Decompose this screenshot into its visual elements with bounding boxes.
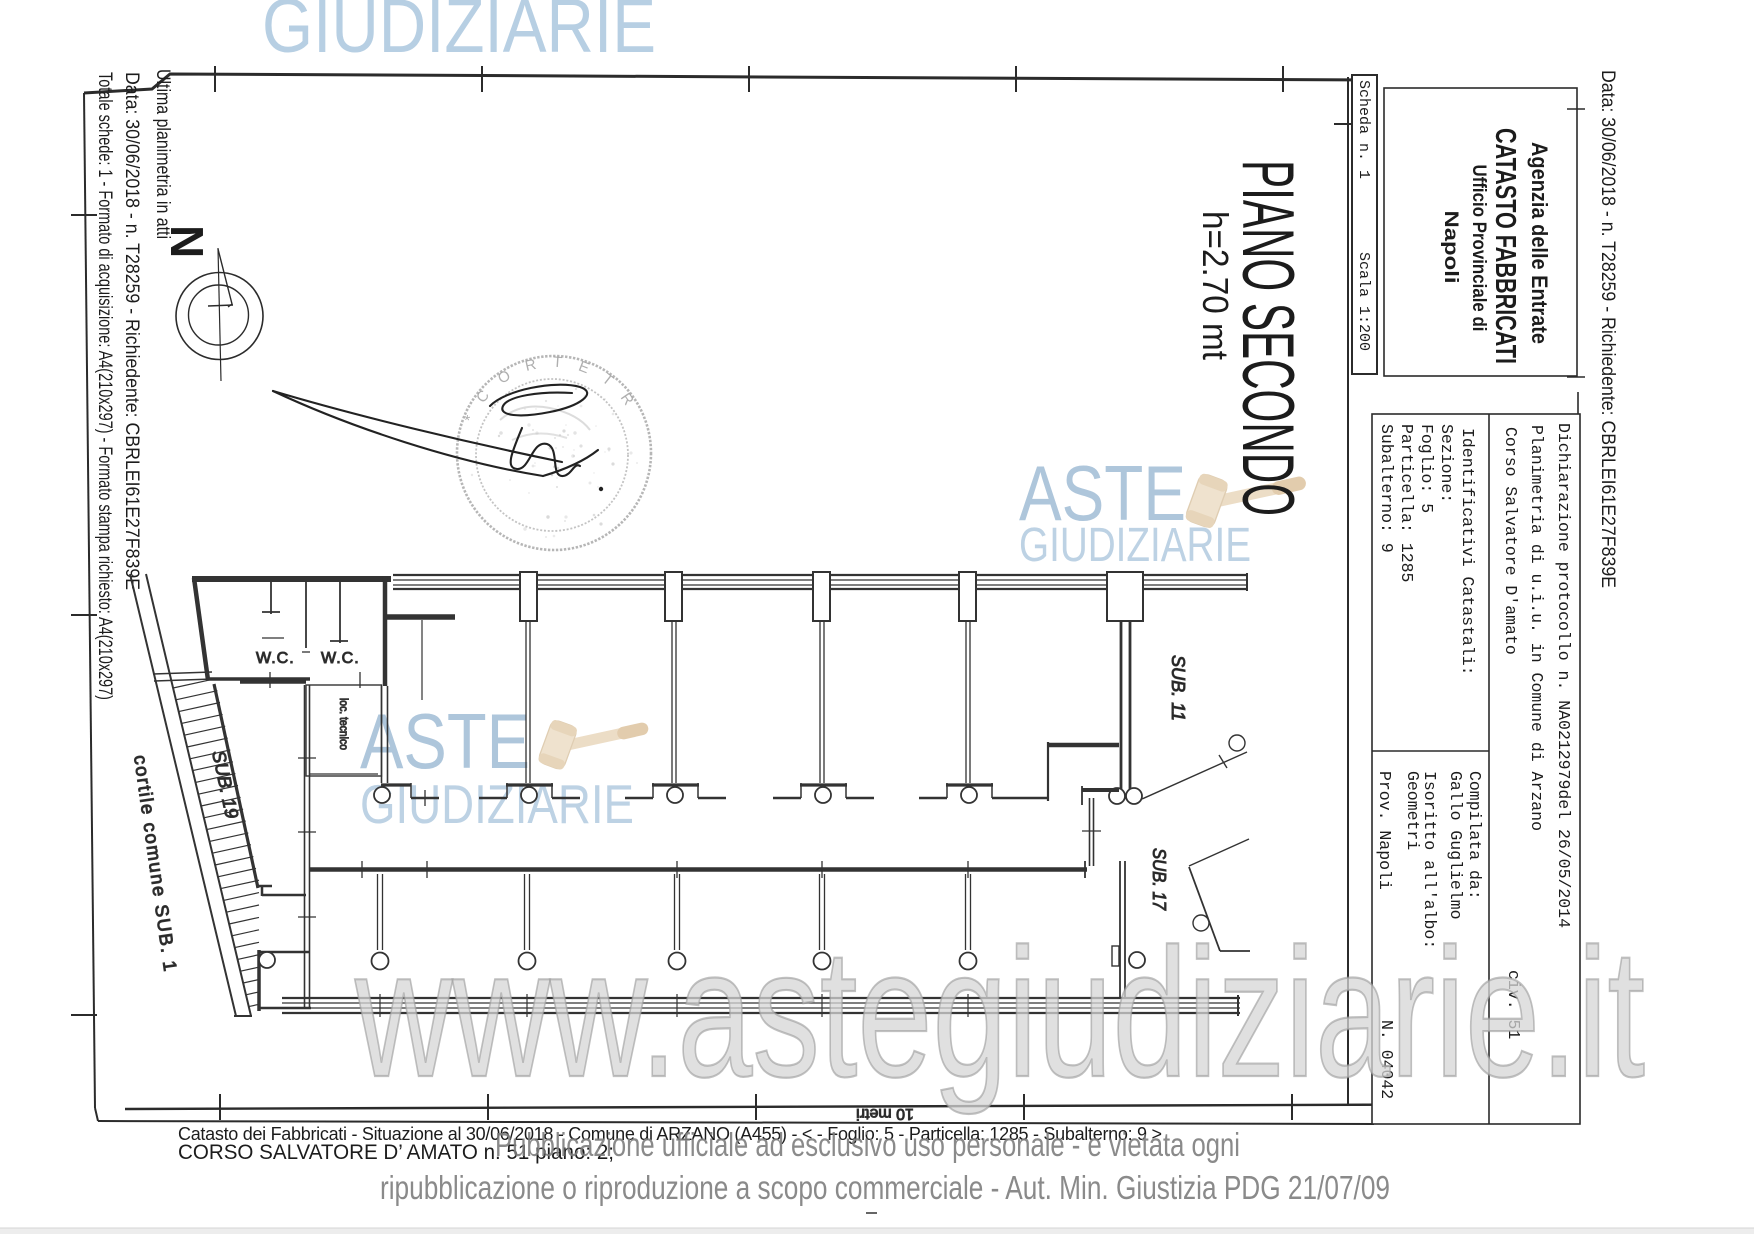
svg-text:GIUDIZIARIE: GIUDIZIARIE (360, 773, 634, 835)
svg-text:GIUDIZIARIE: GIUDIZIARIE (262, 0, 656, 69)
svg-text:Napoli: Napoli (1440, 211, 1461, 284)
svg-text:PIANO SECONDO: PIANO SECONDO (1227, 160, 1308, 516)
svg-text:www.astegiudiziarie.it: www.astegiudiziarie.it (354, 910, 1645, 1115)
svg-text:Pubblicazione ufficiale ad esc: Pubblicazione ufficiale ad esclusivo uso… (495, 1126, 1240, 1163)
svg-text:Ultima planimetria in atti: Ultima planimetria in atti (152, 69, 173, 239)
svg-text:GIUDIZIARIE: GIUDIZIARIE (1019, 519, 1251, 572)
svg-text:Geometri: Geometri (1403, 771, 1422, 850)
svg-text:Prov. Napoli: Prov. Napoli (1375, 771, 1394, 890)
svg-text:SUB. 11: SUB. 11 (1168, 655, 1189, 721)
svg-text:Agenzia delle Entrate: Agenzia delle Entrate (1527, 142, 1552, 344)
svg-text:Particella: 1285: Particella: 1285 (1397, 424, 1416, 582)
svg-text:ASTE: ASTE (360, 697, 530, 785)
svg-text:Corso Salvatore D'amato: Corso Salvatore D'amato (1501, 427, 1520, 655)
svg-text:W.C.: W.C. (321, 650, 360, 667)
svg-text:Data: 30/06/2018 - n. T28259 -: Data: 30/06/2018 - n. T28259 - Richieden… (1597, 70, 1618, 588)
svg-text:Compilata da:: Compilata da: (1465, 771, 1484, 900)
svg-text:Sezione:: Sezione: (1437, 424, 1456, 503)
svg-text:N: N (161, 225, 213, 258)
svg-text:h=2.70 mt: h=2.70 mt (1195, 211, 1236, 360)
svg-text:SUB. 17: SUB. 17 (1149, 848, 1170, 911)
svg-text:Dichiarazione protocollo n. NA: Dichiarazione protocollo n. NA0212979del… (1554, 423, 1573, 928)
svg-text:Subalterno: 9: Subalterno: 9 (1377, 424, 1396, 553)
svg-text:Planimetria di u.i.u. in Comun: Planimetria di u.i.u. in Comune di Arzan… (1527, 425, 1546, 831)
svg-text:Scala 1:200: Scala 1:200 (1355, 252, 1372, 351)
svg-text:Scheda n. 1: Scheda n. 1 (1355, 80, 1372, 179)
svg-text:ripubblicazione o riproduzione: ripubblicazione o riproduzione a scopo c… (380, 1169, 1390, 1206)
svg-text:Data: 30/06/2018 - n. T28259 -: Data: 30/06/2018 - n. T28259 - Richieden… (121, 72, 142, 590)
svg-text:loc. tecnico: loc. tecnico (337, 698, 351, 750)
svg-text:Totale schede: 1 - Formato di: Totale schede: 1 - Formato di acquisizio… (94, 72, 115, 700)
svg-text:Ufficio Provinciale di: Ufficio Provinciale di (1468, 165, 1489, 332)
svg-text:Identificativi Catastali:: Identificativi Catastali: (1458, 428, 1477, 676)
svg-text:Foglio: 5: Foglio: 5 (1417, 424, 1436, 513)
svg-text:CATASTO FABBRICATI: CATASTO FABBRICATI (1489, 128, 1521, 364)
svg-text:Gallo Guglielmo: Gallo Guglielmo (1446, 771, 1465, 920)
svg-text:W.C.: W.C. (256, 650, 295, 667)
